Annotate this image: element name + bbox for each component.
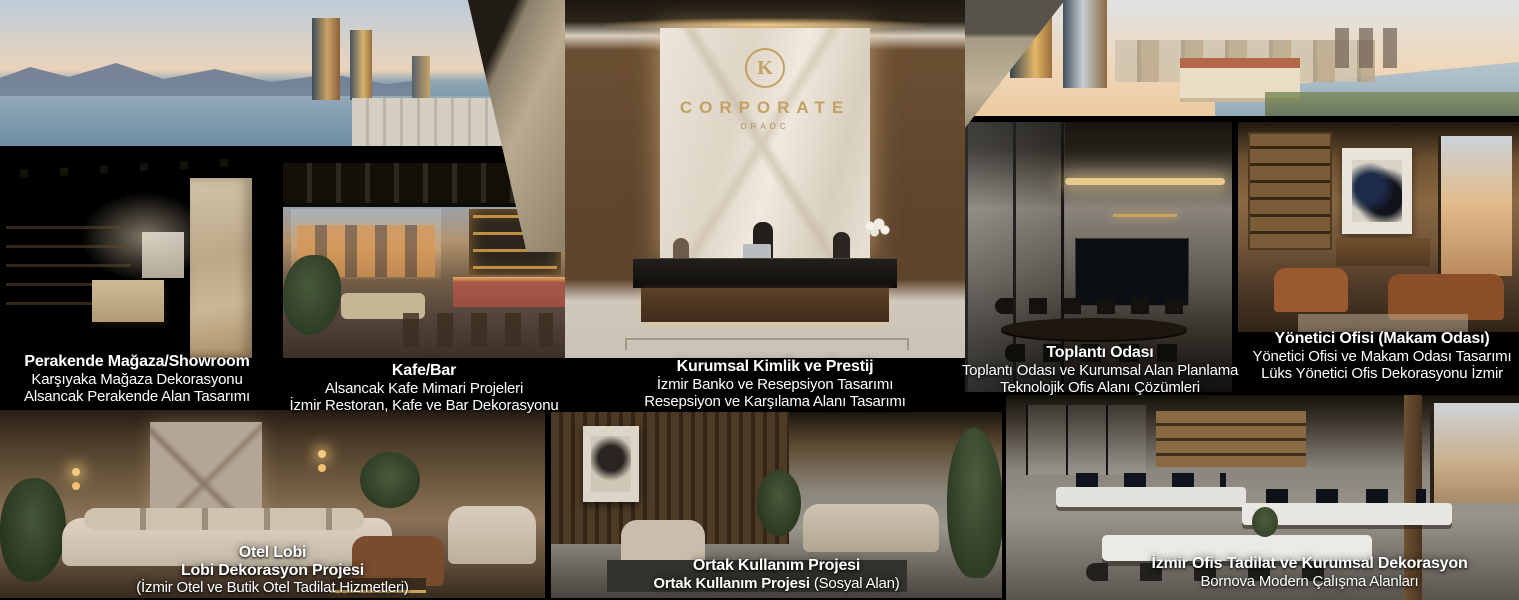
caption-line: (İzmir Otel ve Butik Otel Tadilat Hizmet… [0, 579, 545, 597]
flower-bouquet [861, 218, 891, 238]
plant [283, 255, 341, 335]
window-city-view [1438, 136, 1512, 276]
credenza [1336, 238, 1430, 266]
artwork-abstract [591, 436, 631, 492]
marble-pillar [190, 178, 252, 358]
photo-retail-showroom [0, 152, 274, 358]
display-table [92, 280, 164, 322]
garment-rack [142, 232, 184, 278]
pendant-light [1113, 214, 1177, 217]
plant [947, 428, 1002, 578]
tv-screen [1075, 238, 1189, 306]
caption-title: Kurumsal Kimlik ve Prestij [580, 358, 970, 376]
caption-line: Yönetici Ofisi ve Makam Odası Tasarımı [1245, 348, 1519, 366]
wall-sconce [318, 450, 326, 458]
historic-building-roof [1180, 58, 1300, 68]
artwork-abstract [1352, 160, 1402, 222]
caption-executive: Yönetici Ofisi (Makam Odası) Yönetici Of… [1245, 330, 1519, 383]
caption-title: Yönetici Ofisi (Makam Odası) [1245, 330, 1519, 348]
caption-title: Kafe/Bar [278, 362, 570, 380]
floor-inlay-line [625, 338, 909, 350]
tower [350, 30, 372, 100]
bar-counter [453, 277, 565, 307]
leather-armchair [1274, 268, 1348, 312]
reception-desk-base [641, 288, 889, 322]
office-chairs [995, 298, 1195, 314]
caption-hotel: Otel Lobi Lobi Dekorasyon Projesi (İzmir… [0, 544, 545, 597]
caption-line: Resepsiyon ve Karşılama Alanı Tasarımı [580, 393, 970, 411]
glass-partition [1026, 405, 1146, 475]
caption-title: Ortak Kullanım Projesi [551, 557, 1002, 575]
caption-line: Teknolojik Ofis Alanı Çözümleri [960, 379, 1240, 397]
caption-line: Lüks Yönetici Ofis Dekorasyonu İzmir [1245, 365, 1519, 383]
caption-line: Lobi Dekorasyon Projesi [0, 562, 545, 580]
caption-line-bold: Ortak Kullanım Projesi [653, 575, 809, 592]
caption-title: İzmir Ofis Tadilat ve Kurumsal Dekorasyo… [1100, 555, 1519, 573]
corporate-logo: K CORPORATE ORAOC [565, 48, 965, 131]
beige-sofa [803, 504, 939, 552]
plant [1252, 507, 1278, 537]
window-city-view [1430, 403, 1519, 503]
promenade-green [1265, 92, 1519, 116]
caption-line: Toplantı Odası ve Kurumsal Alan Planlama [960, 362, 1240, 380]
caption-meeting: Toplantı Odası Toplantı Odası ve Kurumsa… [960, 344, 1240, 397]
caption-line: Alsancak Kafe Mimari Projeleri [278, 380, 570, 398]
collage: K CORPORATE ORAOC [0, 0, 1519, 600]
logo-tagline: ORAOC [565, 122, 965, 131]
bookshelf [1248, 132, 1332, 250]
caption-title: Otel Lobi [0, 544, 545, 562]
wall-shelving [1156, 411, 1306, 467]
caption-line: Bornova Modern Çalışma Alanları [1100, 573, 1519, 591]
logo-name: CORPORATE [565, 98, 965, 118]
photo-executive-office [1238, 122, 1519, 332]
caption-line: İzmir Restoran, Kafe ve Bar Dekorasyonu [278, 397, 570, 415]
caption-common: Ortak Kullanım Projesi Ortak Kullanım Pr… [551, 557, 1002, 592]
caption-title: Perakende Mağaza/Showroom [0, 353, 274, 371]
caption-line: Alsancak Perakende Alan Tasarımı [0, 388, 274, 406]
caption-office: İzmir Ofis Tadilat ve Kurumsal Dekorasyo… [1100, 555, 1519, 590]
caption-cafe: Kafe/Bar Alsancak Kafe Mimari Projeleri … [278, 362, 570, 415]
sofa-cushions [84, 508, 364, 530]
monitors [1266, 489, 1426, 503]
track-lights [20, 158, 240, 178]
logo-monogram-icon: K [745, 48, 785, 88]
caption-line: İzmir Banko ve Resepsiyon Tasarımı [580, 376, 970, 394]
monitors [1076, 473, 1226, 487]
photo-corporate-lobby: K CORPORATE ORAOC [565, 0, 965, 358]
cafe-tables-chairs [403, 313, 553, 347]
conference-table [1001, 318, 1187, 340]
tower [412, 56, 430, 102]
plant [757, 470, 801, 536]
caption-title: Toplantı Odası [960, 344, 1240, 362]
reception-desk-top [633, 258, 897, 288]
wall-sconce [72, 468, 80, 476]
tower [1063, 0, 1107, 88]
caption-showroom: Perakende Mağaza/Showroom Karşıyaka Mağa… [0, 353, 274, 406]
cove-light [1065, 178, 1225, 185]
white-desk-row [1056, 487, 1246, 507]
caption-line: Karşıyaka Mağaza Dekorasyonu [0, 371, 274, 389]
caption-line: Ortak Kullanım Projesi (Sosyal Alan) [551, 575, 1002, 593]
far-towers [1335, 28, 1405, 68]
tower [312, 18, 340, 100]
plant [360, 452, 420, 508]
caption-line-regular: (Sosyal Alan) [810, 575, 900, 592]
caption-reception: Kurumsal Kimlik ve Prestij İzmir Banko v… [580, 358, 970, 411]
